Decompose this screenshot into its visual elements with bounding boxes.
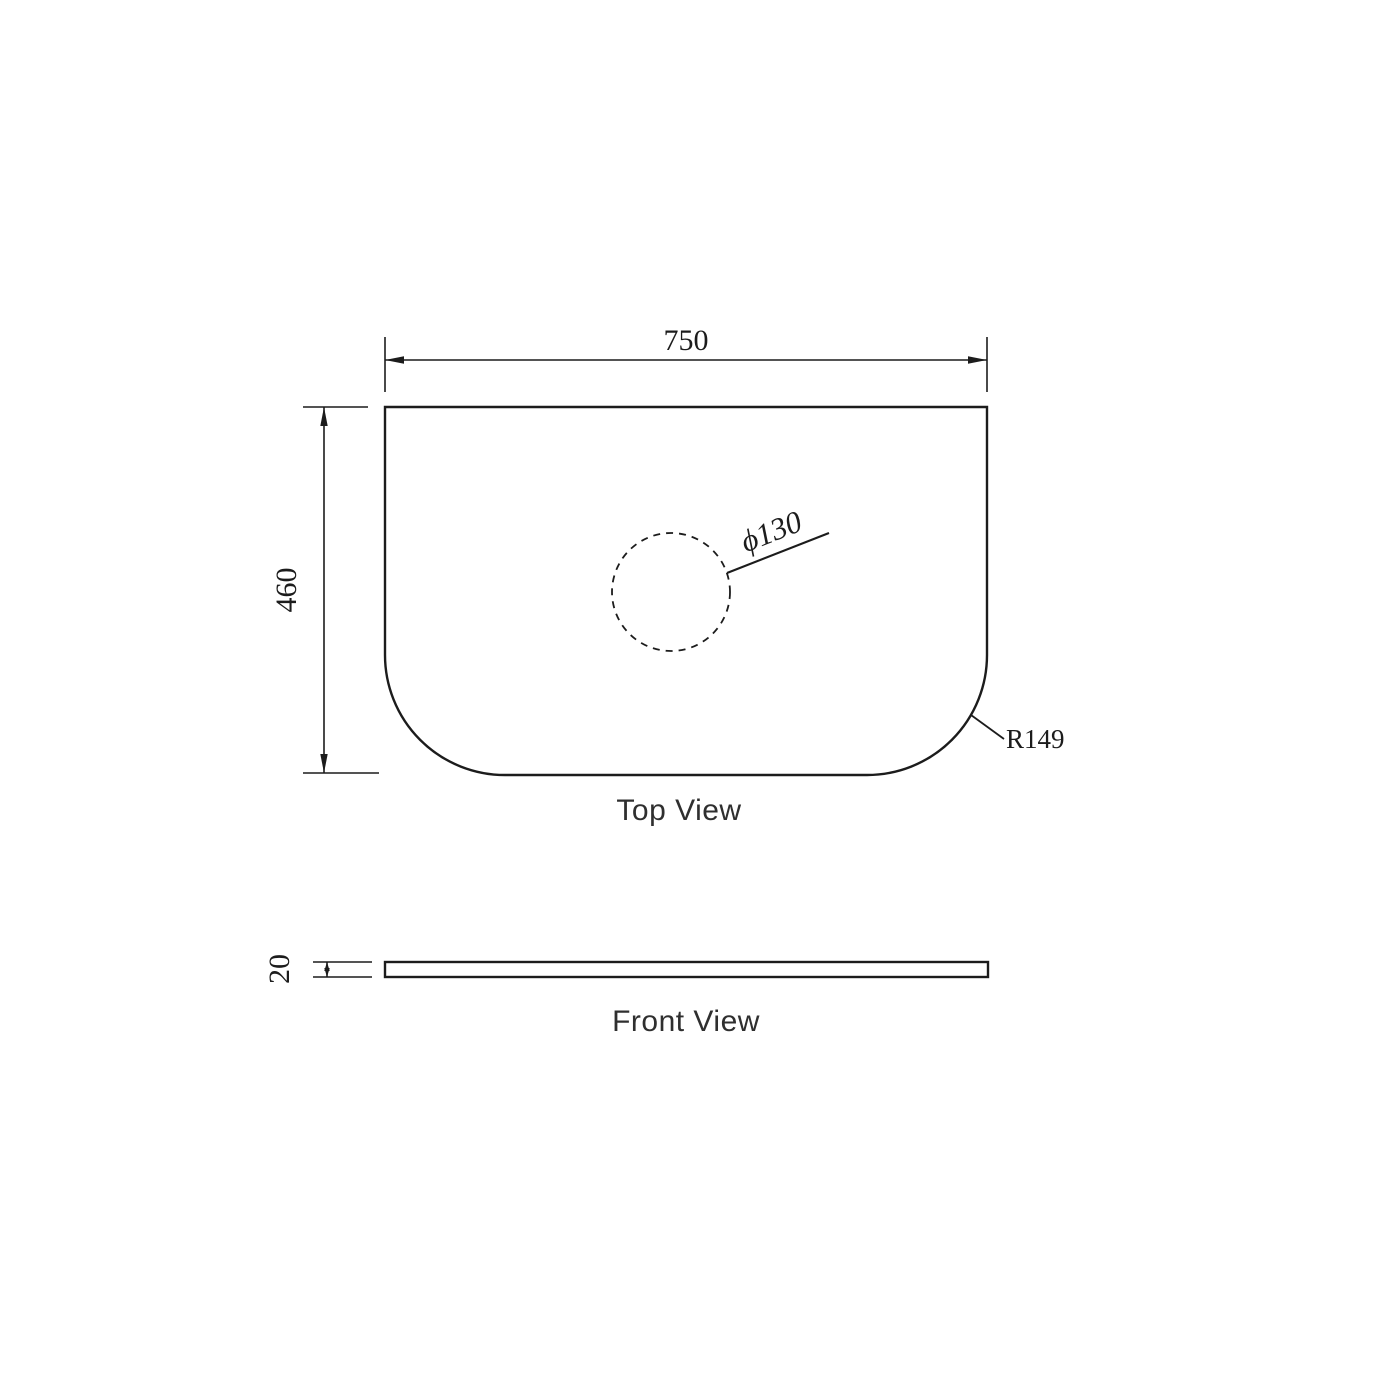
dim-width-arrow-right	[968, 356, 987, 363]
top-view: 750 460 ϕ130 R149 Top View	[270, 324, 1065, 827]
top-view-outline	[385, 407, 987, 775]
dim-depth-arrow-top	[320, 407, 327, 426]
top-view-label: Top View	[616, 794, 741, 827]
dim-width-arrow-left	[385, 356, 404, 363]
dim-thickness: 20	[263, 954, 372, 984]
callout-corner-radius: R149	[971, 715, 1065, 754]
front-view-label: Front View	[612, 1005, 760, 1038]
dim-thickness-arrow-bottom	[324, 968, 329, 977]
callout-hole-diameter: ϕ130	[727, 503, 829, 573]
front-view: 20 Front View	[263, 954, 988, 1038]
dim-depth: 460	[270, 407, 379, 773]
corner-radius-text: R149	[1006, 724, 1065, 754]
dim-depth-text: 460	[270, 568, 303, 613]
hole-diameter-text: ϕ130	[736, 503, 807, 559]
dim-width: 750	[385, 324, 987, 392]
radius-leader-line	[971, 715, 1004, 739]
vanity-top-technical-drawing: 750 460 ϕ130 R149 Top View	[0, 0, 1400, 1400]
front-view-outline	[385, 962, 988, 977]
dim-thickness-text: 20	[263, 954, 296, 984]
tap-hole-circle	[612, 533, 730, 651]
dim-width-text: 750	[664, 324, 709, 357]
dim-depth-arrow-bottom	[320, 754, 327, 773]
technical-drawing-page: 750 460 ϕ130 R149 Top View	[0, 0, 1400, 1400]
